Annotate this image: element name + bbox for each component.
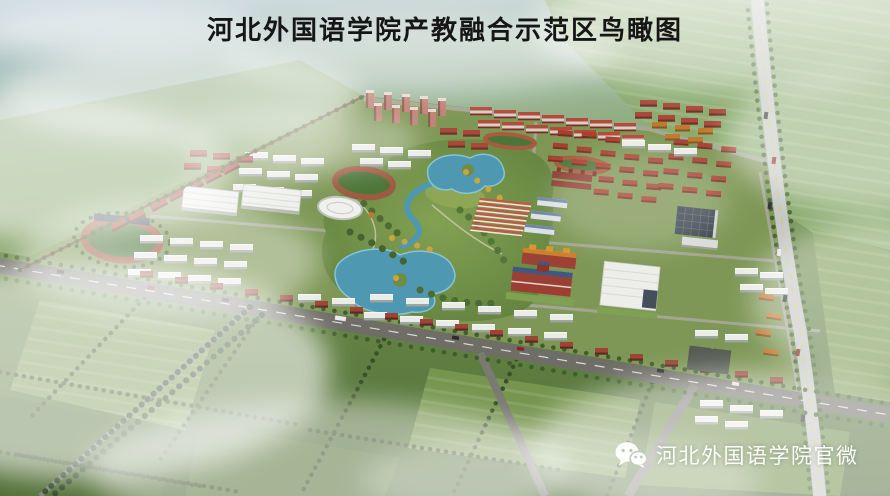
wechat-icon xyxy=(614,441,648,469)
watermark: 河北外国语学院官微 xyxy=(614,440,859,470)
page-title: 河北外国语学院产教融合示范区鸟瞰图 xyxy=(0,10,890,47)
aerial-rendering xyxy=(0,0,890,496)
dark-grid-building xyxy=(687,346,732,375)
watermark-label: 河北外国语学院官微 xyxy=(656,440,859,470)
exhibition-hall xyxy=(597,261,662,319)
rendered-image: 河北外国语学院产教融合示范区鸟瞰图 河北外国语学院官微 xyxy=(0,0,890,496)
